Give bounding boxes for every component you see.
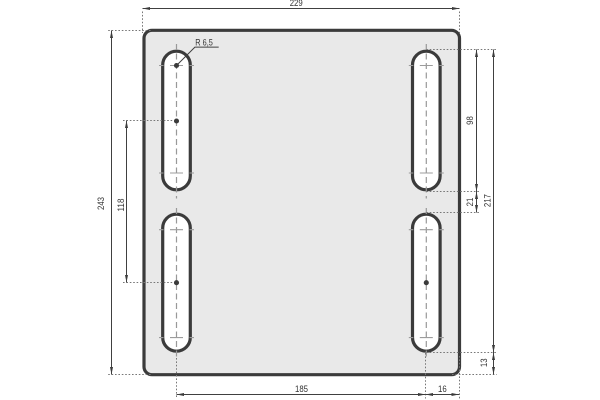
svg-text:229: 229 — [290, 0, 303, 8]
svg-text:13: 13 — [479, 358, 489, 367]
svg-text:16: 16 — [438, 384, 447, 394]
svg-text:243: 243 — [96, 197, 106, 210]
svg-text:217: 217 — [482, 194, 492, 207]
svg-text:185: 185 — [295, 384, 308, 394]
svg-text:118: 118 — [116, 199, 126, 212]
svg-text:98: 98 — [465, 116, 475, 125]
svg-text:21: 21 — [465, 198, 475, 207]
svg-text:R 6,5: R 6,5 — [195, 38, 213, 48]
